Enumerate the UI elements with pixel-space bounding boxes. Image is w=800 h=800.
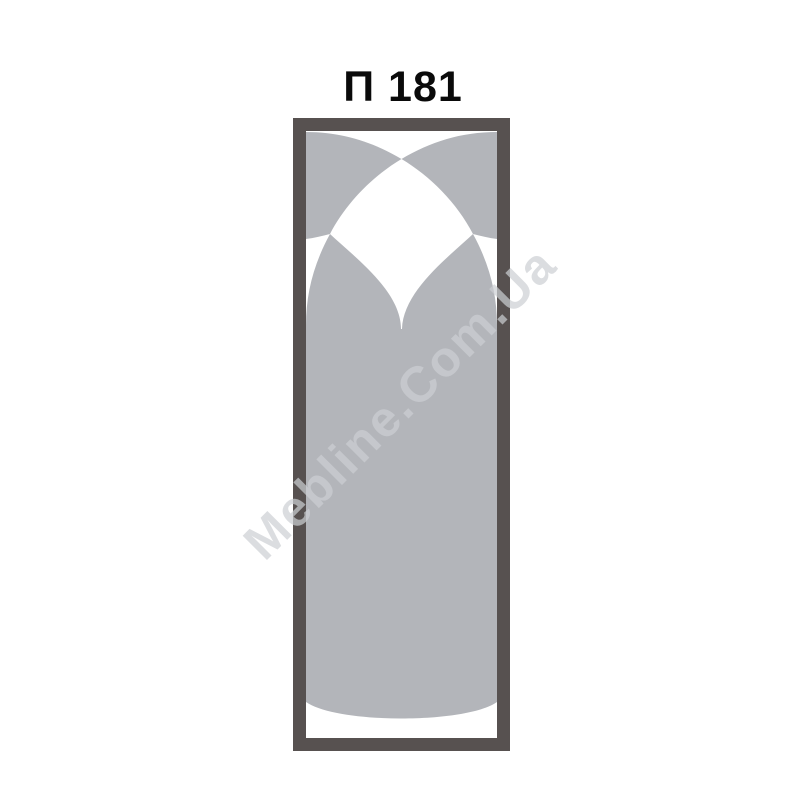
facade-drawing: П 181 Mebline.Com.Ua <box>0 0 800 800</box>
product-title: П 181 <box>343 63 463 111</box>
product-page: П 181 Mebline.Com.Ua <box>0 0 800 800</box>
